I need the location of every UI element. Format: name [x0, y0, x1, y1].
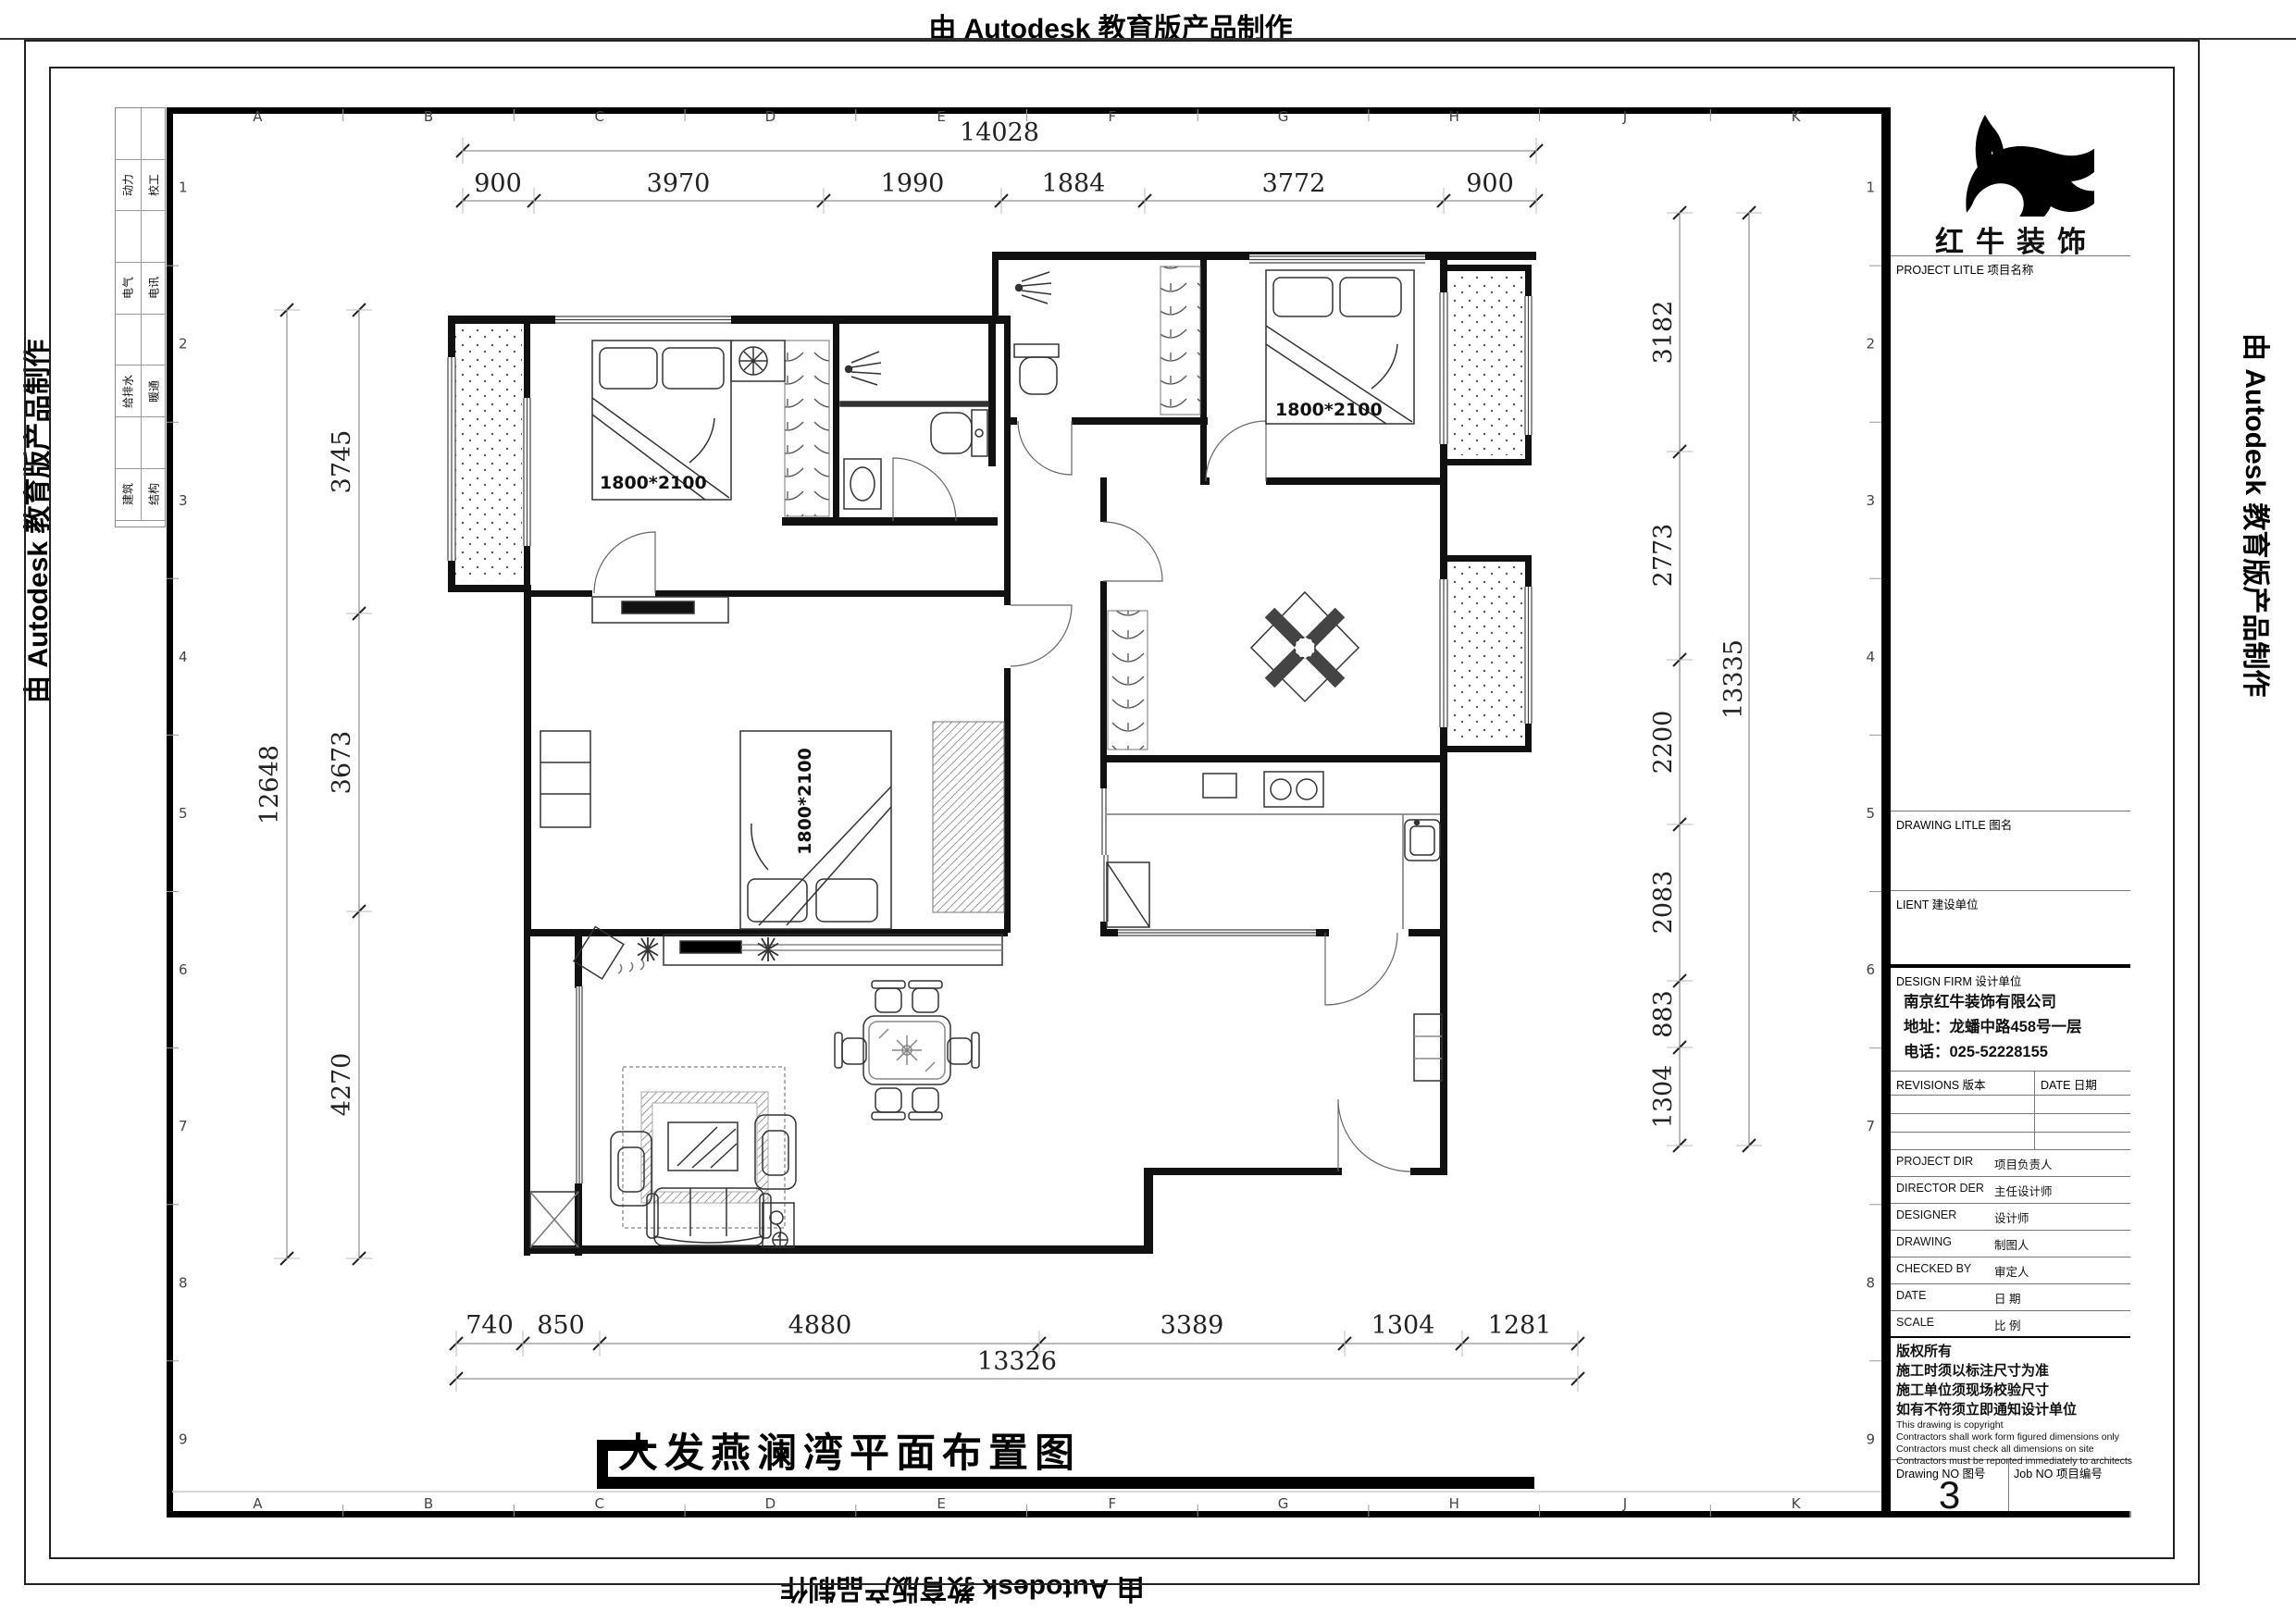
drawing-title-block: 大发燕澜湾平面布置图 — [172, 1431, 1881, 1492]
grid-references: AABBCCDDEEFFGGHHJJKK112233445566778899 — [167, 108, 1881, 1517]
grid-letter: E — [937, 108, 945, 125]
svg-text:900: 900 — [474, 169, 522, 198]
grid-number: 3 — [1866, 492, 1875, 509]
company-phone: 电话：025-52228155 — [1904, 1040, 2082, 1065]
drawing-number: 3 — [1891, 1473, 2008, 1518]
svg-text:2773: 2773 — [1649, 524, 1678, 588]
svg-text:12648: 12648 — [255, 745, 284, 824]
svg-text:740: 740 — [465, 1311, 514, 1340]
grid-letter: E — [937, 1495, 945, 1512]
grid-letter: G — [1278, 108, 1289, 125]
grid-letter: C — [595, 1495, 604, 1512]
grid-letter: F — [1109, 1495, 1117, 1512]
svg-text:1884: 1884 — [1042, 169, 1106, 198]
closet-hangers-2 — [1160, 266, 1200, 415]
titleblock-row: DESIGNER设计师 — [1891, 1204, 2130, 1231]
client-cell: LIENT 建设单位 — [1891, 891, 2130, 968]
grid-letter: K — [1792, 1495, 1802, 1512]
titleblock-row: DRAWING制图人 — [1891, 1231, 2130, 1258]
logo-text: 红牛装饰 — [1891, 218, 2130, 260]
grid-number: 5 — [179, 805, 188, 822]
grid-letter: D — [765, 1495, 776, 1512]
grid-letter: H — [1449, 1495, 1459, 1512]
shower-icon — [851, 352, 881, 385]
copyright-line: Contractors must check all dimensions on… — [1896, 1443, 2132, 1456]
svg-text:4880: 4880 — [788, 1311, 852, 1340]
dimension-ticks — [274, 138, 1762, 1392]
company-address: 地址：龙蟠中路458号一层 — [1904, 1015, 2082, 1040]
svg-text:850: 850 — [537, 1311, 585, 1340]
personnel-rows: PROJECT DIR项目负责人DIRECTOR DER主任设计师DESIGNE… — [1891, 1150, 2130, 1338]
row-label-cn: 审定人 — [1994, 1262, 2029, 1280]
copyright-cell: 版权所有施工时须以标注尺寸为准施工单位须现场校验尺寸如有不符须立即通知设计单位T… — [1891, 1338, 2130, 1460]
grid-number: 5 — [1866, 805, 1875, 822]
copyright-line: Contractors shall work form figured dime… — [1896, 1431, 2132, 1443]
rednbull-logo — [1928, 113, 2094, 217]
closet-hangers-1 — [785, 341, 829, 516]
svg-text:900: 900 — [1466, 169, 1514, 198]
row-label-en: SCALE — [1896, 1316, 1934, 1329]
grid-number: 8 — [1866, 1274, 1875, 1291]
copyright-line: This drawing is copyright — [1896, 1419, 2132, 1431]
copyright-line: 施工单位须现场校验尺寸 — [1896, 1381, 2132, 1400]
project-title-cell: PROJECT LITLE 项目名称 — [1891, 256, 2130, 811]
stove-icon — [1264, 772, 1323, 807]
titleblock-row: DIRECTOR DER主任设计师 — [1891, 1177, 2130, 1204]
grid-number: 7 — [1866, 1118, 1875, 1134]
svg-text:1990: 1990 — [881, 169, 945, 198]
bathroom-2 — [1014, 272, 1059, 394]
row-label-cn: 比 例 — [1994, 1316, 2020, 1333]
drawing-no-cell: Drawing NO 图号 3 Job NO 项目编号 — [1891, 1460, 2130, 1511]
copyright-line: 版权所有 — [1896, 1342, 2132, 1361]
company-name: 南京红牛装饰有限公司 — [1904, 990, 2082, 1015]
revisions-header: REVISIONS 版本 DATE 日期 — [1891, 1072, 2130, 1096]
drawing-title-cell: DRAWING LITLE 图名 — [1891, 811, 2130, 891]
titleblock-row: DATE日 期 — [1891, 1284, 2130, 1311]
titleblock-row: PROJECT DIR项目负责人 — [1891, 1150, 2130, 1177]
grid-letter: B — [424, 1495, 433, 1512]
grid-number: 4 — [179, 649, 188, 665]
titleblock-row: SCALE比 例 — [1891, 1311, 2130, 1338]
grid-letter: F — [1109, 108, 1117, 125]
shoe-cabinet — [1414, 1014, 1442, 1081]
svg-text:3389: 3389 — [1160, 1311, 1224, 1340]
copyright-line: 如有不符须立即通知设计单位 — [1896, 1400, 2132, 1419]
grid-letter: H — [1449, 108, 1459, 125]
svg-text:13326: 13326 — [977, 1347, 1057, 1376]
row-label-en: DRAWING — [1896, 1235, 1952, 1248]
wardrobe-hatch — [933, 722, 1004, 912]
row-label-cn: 主任设计师 — [1994, 1182, 2053, 1199]
svg-text:883: 883 — [1649, 990, 1678, 1038]
grid-letter: C — [595, 108, 604, 125]
grid-number: 1 — [1866, 180, 1875, 196]
titleblock-row: CHECKED BY审定人 — [1891, 1258, 2130, 1284]
bed-size-label: 1800*2100 — [795, 748, 815, 855]
svg-text:3772: 3772 — [1262, 169, 1326, 198]
grid-number: 2 — [1866, 336, 1875, 353]
grid-letter: J — [1622, 1495, 1627, 1512]
row-label-en: DIRECTOR DER — [1896, 1182, 1984, 1195]
balcony-topright-hatch — [1448, 274, 1524, 455]
shaft-box — [530, 1192, 578, 1247]
row-label-en: PROJECT DIR — [1896, 1155, 1973, 1168]
grid-number: 7 — [179, 1118, 188, 1134]
revision-row — [1891, 1133, 2130, 1150]
living-room — [530, 927, 1002, 1247]
grid-number: 4 — [1866, 649, 1875, 665]
grid-letter: A — [253, 1495, 263, 1512]
svg-text:1281: 1281 — [1488, 1311, 1552, 1340]
grid-letter: J — [1622, 108, 1627, 125]
grid-number: 6 — [179, 961, 188, 978]
svg-text:1304: 1304 — [1649, 1065, 1678, 1129]
svg-text:4270: 4270 — [328, 1053, 356, 1117]
toilet-icon — [1020, 357, 1057, 394]
row-label-en: DATE — [1896, 1289, 1926, 1302]
kitchen — [1107, 772, 1440, 929]
row-label-cn: 项目负责人 — [1994, 1155, 2053, 1172]
toilet-icon — [931, 413, 972, 453]
ceiling-fan — [731, 341, 785, 381]
row-label-en: DESIGNER — [1896, 1208, 1956, 1221]
grid-letter: A — [253, 108, 263, 125]
grid-number: 9 — [179, 1431, 188, 1447]
flower-motif — [879, 1029, 935, 1072]
row-label-cn: 设计师 — [1994, 1208, 2029, 1226]
grid-number: 8 — [179, 1274, 188, 1291]
row-label-cn: 日 期 — [1994, 1289, 2020, 1307]
svg-text:13335: 13335 — [1719, 639, 1748, 719]
dining-set — [835, 981, 1442, 1120]
tv-icon — [680, 941, 741, 953]
svg-text:3970: 3970 — [647, 169, 711, 198]
grid-number: 2 — [179, 336, 188, 353]
grid-number: 9 — [1866, 1431, 1875, 1447]
revision-row — [1891, 1114, 2130, 1133]
svg-text:1304: 1304 — [1371, 1311, 1435, 1340]
grid-letter: K — [1792, 108, 1802, 125]
design-firm-cell: DESIGN FIRM 设计单位 南京红牛装饰有限公司 地址：龙蟠中路458号一… — [1891, 968, 2130, 1072]
bathroom-1 — [840, 352, 988, 509]
floor-lamp-icon — [763, 1203, 794, 1247]
svg-text:3673: 3673 — [328, 731, 356, 795]
grid-letter: G — [1278, 1495, 1289, 1512]
bed-size-label: 1800*2100 — [1275, 400, 1383, 420]
svg-text:2200: 2200 — [1649, 711, 1678, 774]
grid-number: 6 — [1866, 961, 1875, 978]
balcony-midright-hatch — [1448, 564, 1524, 742]
grid-letter: D — [765, 108, 776, 125]
title-block: 红牛装饰 PROJECT LITLE 项目名称 DRAWING LITLE 图名… — [1891, 107, 2131, 1511]
sheet: { "stamps": { "autodesk": "由 Autodesk 教育… — [0, 0, 2296, 1623]
bed-size-label: 1800*2100 — [600, 473, 707, 493]
logo-cell: 红牛装饰 — [1891, 107, 2130, 256]
shower-icon — [1022, 272, 1051, 304]
drawing-title: 大发燕澜湾平面布置图 — [618, 1431, 1081, 1477]
svg-text:3745: 3745 — [328, 430, 356, 494]
balcony-left-hatch — [455, 328, 522, 581]
svg-text:3182: 3182 — [1649, 301, 1678, 365]
coffee-table — [668, 1122, 738, 1171]
svg-text:2083: 2083 — [1649, 871, 1678, 935]
revision-row — [1891, 1096, 2130, 1114]
copyright-line: 施工时须以标注尺寸为准 — [1896, 1361, 2132, 1381]
svg-text:14028: 14028 — [960, 118, 1039, 147]
row-label-cn: 制图人 — [1994, 1235, 2029, 1253]
sink-icon — [844, 459, 881, 509]
tatami-table — [1251, 592, 1359, 701]
grid-letter: B — [424, 108, 433, 125]
grid-number: 1 — [179, 180, 188, 196]
row-label-en: CHECKED BY — [1896, 1262, 1971, 1275]
closet-hangers-3 — [1108, 611, 1148, 750]
bed-middle — [540, 597, 891, 929]
grid-number: 3 — [179, 492, 188, 509]
